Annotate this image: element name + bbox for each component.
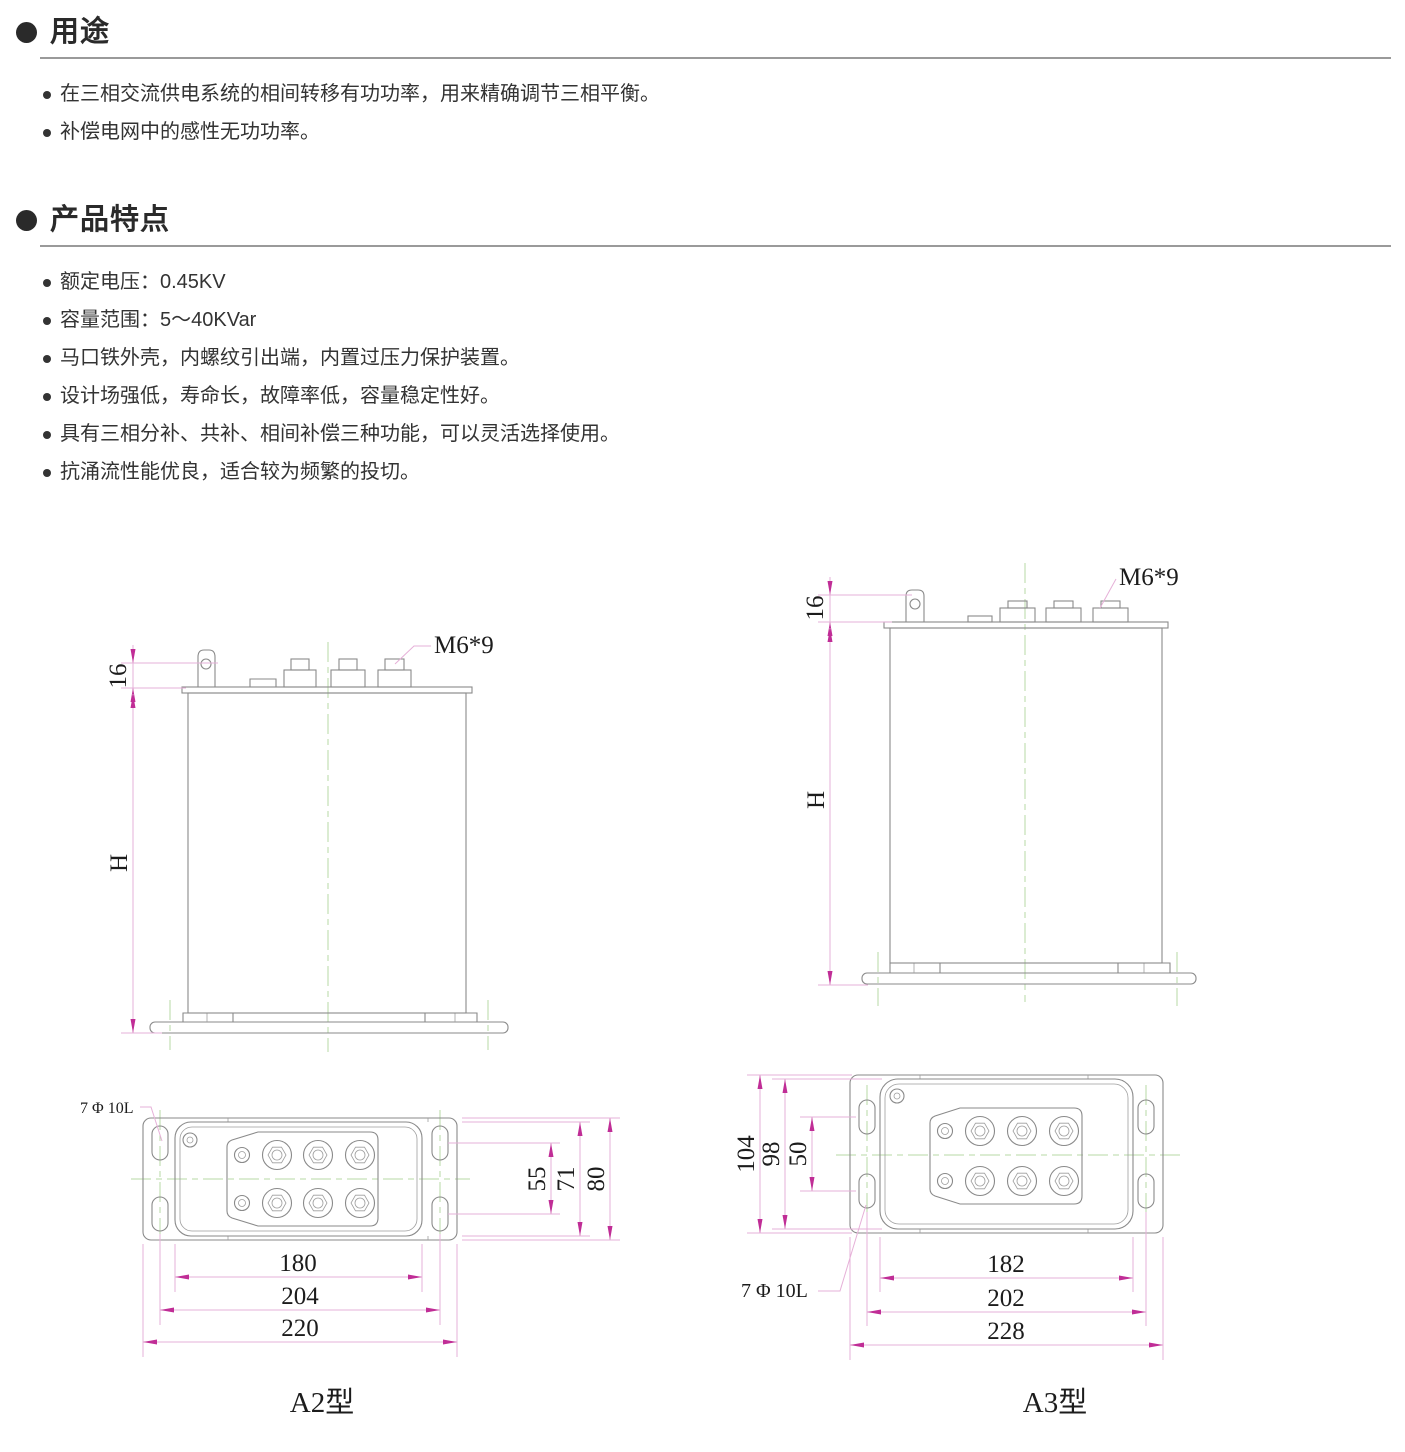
section-bullet-icon (16, 22, 37, 43)
a2-top-plate (182, 687, 472, 693)
a2-caption: A2型 (290, 1386, 354, 1419)
leader-line (818, 1205, 866, 1291)
a3-top-plate (884, 622, 1168, 628)
a3-dim-182: 182 (880, 1237, 1133, 1292)
features-bullet-2: 容量范围：5～40KVar (60, 309, 1391, 332)
a3-dim-98: 98 (758, 1079, 882, 1229)
a2-vent-bump (250, 679, 276, 687)
datasheet-page: 用途 在三相交流供电系统的相间转移有功功率，用来精确调节三相平衡。 补偿电网中的… (0, 0, 1405, 1452)
a3-fill-port (890, 1089, 904, 1103)
technical-drawing-canvas: 16 H M6*9 (0, 540, 1405, 1430)
a3-dim-16-value: 16 (802, 596, 829, 621)
a2-dim-16-value: 16 (105, 664, 132, 689)
a2-tab-hole (201, 659, 211, 669)
a3-vent-bump (968, 616, 992, 622)
a2-base-plate (150, 1022, 508, 1033)
a3-caption: A3型 (1023, 1386, 1087, 1419)
a3-dim-202-value: 202 (987, 1285, 1025, 1312)
section-features-title: 产品特点 (50, 204, 170, 236)
a2-terminals (284, 659, 411, 687)
section-divider (40, 57, 1391, 59)
a2-dim-H-value: H (106, 854, 133, 872)
a2-dim-55-value: 55 (524, 1167, 551, 1192)
a3-hole-label: 7 Φ 10L (741, 1280, 808, 1302)
a3-bottom-view: 50 98 104 182 (733, 1075, 1180, 1419)
a2-foot-left (183, 1013, 233, 1022)
a3-thread-label: M6*9 (1119, 564, 1179, 591)
a3-dim-104-value: 104 (733, 1135, 760, 1173)
a2-dim-80-value: 80 (583, 1167, 610, 1192)
usage-bullet-list: 在三相交流供电系统的相间转移有功功率，用来精确调节三相平衡。 补偿电网中的感性无… (16, 83, 1391, 144)
a2-dim-71-value: 71 (553, 1167, 580, 1192)
a3-terminals (1000, 601, 1128, 622)
section-usage-header: 用途 (16, 16, 1391, 48)
a3-side-view: 16 H M6*9 (802, 563, 1196, 1006)
a2-foot-right (425, 1013, 477, 1022)
a2-side-view: 16 H M6*9 (105, 632, 508, 1052)
a2-dim-180-value: 180 (279, 1250, 317, 1277)
a3-dim-H-value: H (803, 791, 830, 809)
features-bullet-1: 额定电压：0.45KV (60, 271, 1391, 294)
a3-dim-H: H (803, 628, 868, 985)
a2-fill-port (183, 1133, 197, 1147)
section-usage-title: 用途 (50, 16, 110, 48)
a3-dim-182-value: 182 (987, 1251, 1025, 1278)
usage-bullet-1: 在三相交流供电系统的相间转移有功功率，用来精确调节三相平衡。 (60, 83, 1391, 106)
a3-body (890, 628, 1162, 963)
section-features: 产品特点 额定电压：0.45KV 容量范围：5～40KVar 马口铁外壳，内螺纹… (16, 204, 1391, 499)
a3-dim-16: 16 (802, 577, 912, 640)
a3-mounting-slots (859, 1100, 1154, 1208)
a2-terminal-block (227, 540, 935, 1226)
usage-bullet-2: 补偿电网中的感性无功功率。 (60, 121, 1391, 144)
a2-dim-204-value: 204 (281, 1283, 319, 1310)
section-features-header: 产品特点 (16, 204, 1391, 236)
a2-thread-label: M6*9 (434, 632, 494, 659)
section-divider (40, 245, 1391, 247)
section-usage: 用途 在三相交流供电系统的相间转移有功功率，用来精确调节三相平衡。 补偿电网中的… (16, 16, 1391, 159)
a2-dim-220-value: 220 (281, 1315, 319, 1342)
a3-base-plate (862, 973, 1196, 984)
a3-dim-98-value: 98 (758, 1142, 785, 1167)
features-bullet-3: 马口铁外壳，内螺纹引出端，内置过压力保护装置。 (60, 347, 1391, 370)
features-bullet-5: 具有三相分补、共补、相间补偿三种功能，可以灵活选择使用。 (60, 423, 1391, 446)
a2-hole-label: 7 Φ 10L (80, 1100, 133, 1117)
a3-terminal-block (930, 1108, 1082, 1204)
a3-dim-50: 50 (785, 1117, 856, 1191)
leader-line (1100, 579, 1116, 608)
a2-dim-204: 204 (160, 1234, 440, 1325)
leader-line (395, 646, 431, 664)
a3-tab-hole (910, 599, 920, 609)
a2-hole-callout: 7 Φ 10L (80, 1100, 162, 1141)
dim-arrow (131, 1019, 136, 1033)
features-bullet-list: 额定电压：0.45KV 容量范围：5～40KVar 马口铁外壳，内螺纹引出端，内… (16, 271, 1391, 484)
a2-body (188, 693, 466, 1013)
features-bullet-4: 设计场强低，寿命长，故障率低，容量稳定性好。 (60, 385, 1391, 408)
features-bullet-6: 抗涌流性能优良，适合较为频繁的投切。 (60, 461, 1391, 484)
a3-dim-228-value: 228 (987, 1318, 1025, 1345)
a3-body-outline (880, 1079, 1133, 1229)
a2-dim-H: H (106, 694, 162, 1033)
a3-foot-left (890, 963, 940, 973)
a2-dim-16: 16 (105, 645, 218, 706)
a2-thread-callout: M6*9 (395, 632, 494, 664)
a3-dim-50-value: 50 (785, 1142, 812, 1167)
section-bullet-icon (16, 210, 37, 231)
dim-arrow (131, 649, 136, 663)
